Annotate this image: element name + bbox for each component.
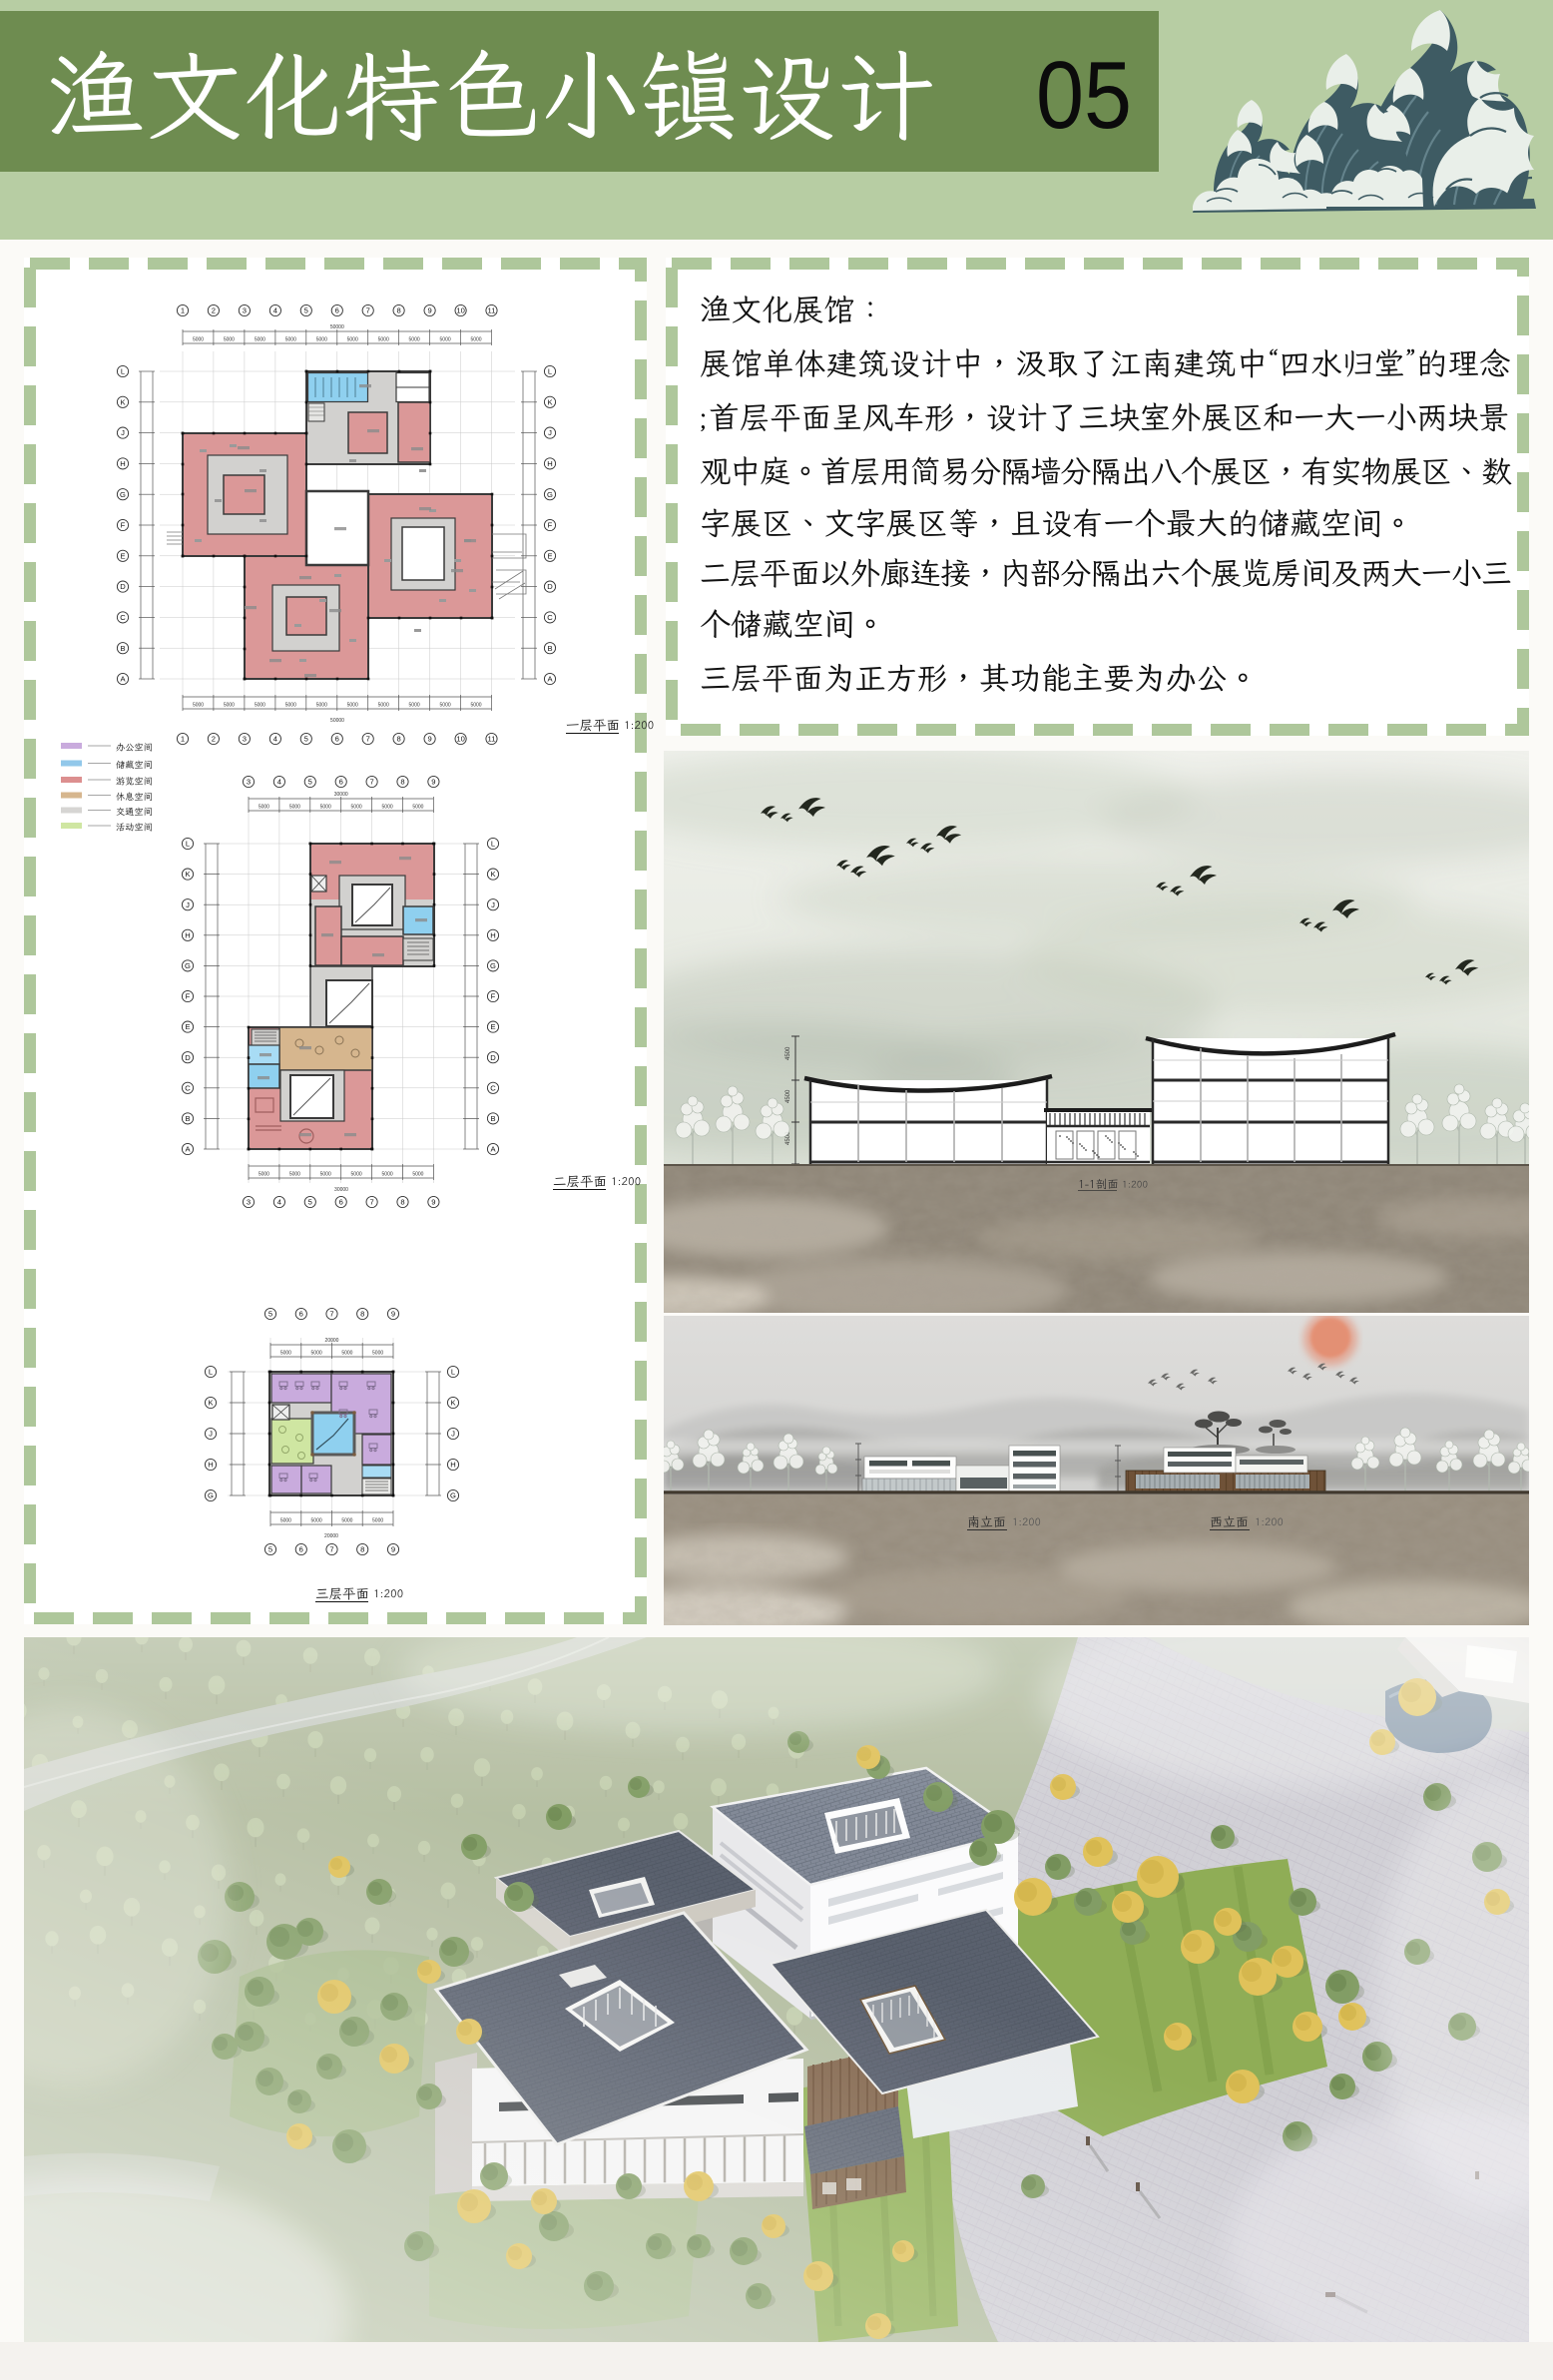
svg-text:5000: 5000 (347, 337, 358, 343)
svg-text:20000: 20000 (325, 1338, 339, 1344)
svg-text:7: 7 (369, 778, 373, 787)
svg-text:G: G (450, 1491, 456, 1500)
svg-text:4500: 4500 (785, 1089, 791, 1103)
svg-text:8: 8 (400, 778, 404, 787)
svg-text:H: H (450, 1461, 455, 1470)
svg-text:5000: 5000 (259, 805, 269, 811)
svg-text:5000: 5000 (378, 703, 389, 709)
svg-text:8: 8 (360, 1310, 364, 1319)
svg-text:D: D (185, 1053, 191, 1062)
svg-text:L: L (121, 367, 125, 376)
svg-text:8: 8 (400, 1198, 404, 1207)
svg-text:K: K (120, 397, 125, 406)
svg-text:C: C (185, 1083, 191, 1092)
svg-text:H: H (490, 930, 495, 939)
svg-text:8: 8 (396, 306, 400, 315)
svg-text:G: G (208, 1491, 214, 1500)
svg-text:6: 6 (335, 306, 339, 315)
svg-text:11: 11 (488, 735, 496, 744)
svg-text:L: L (548, 367, 552, 376)
svg-text:3: 3 (247, 1198, 251, 1207)
svg-text:5000: 5000 (440, 337, 451, 343)
svg-text:50000: 50000 (330, 718, 344, 724)
svg-text:5000: 5000 (316, 703, 327, 709)
svg-text:6: 6 (339, 1198, 343, 1207)
svg-text:5000: 5000 (259, 1172, 269, 1178)
svg-text:D: D (547, 582, 553, 591)
svg-text:K: K (208, 1399, 213, 1408)
svg-text:6: 6 (335, 735, 339, 744)
svg-text:5000: 5000 (440, 703, 451, 709)
svg-text:50000: 50000 (330, 324, 344, 330)
svg-text:H: H (120, 459, 125, 468)
svg-text:5: 5 (308, 1198, 312, 1207)
svg-text:B: B (490, 1114, 495, 1123)
svg-text:L: L (209, 1368, 213, 1377)
svg-text:5000: 5000 (372, 1518, 383, 1524)
svg-text:5000: 5000 (347, 703, 358, 709)
svg-text:L: L (491, 840, 495, 849)
svg-text:J: J (186, 900, 190, 909)
svg-text:7: 7 (366, 735, 370, 744)
svg-text:E: E (185, 1022, 190, 1031)
svg-text:5: 5 (268, 1545, 272, 1554)
svg-text:5000: 5000 (372, 1351, 383, 1357)
svg-text:5000: 5000 (470, 703, 481, 709)
svg-text:4: 4 (277, 778, 281, 787)
svg-text:5000: 5000 (311, 1351, 322, 1357)
svg-text:11: 11 (488, 306, 496, 315)
svg-text:5000: 5000 (378, 337, 389, 343)
svg-text:9: 9 (427, 735, 431, 744)
svg-text:L: L (451, 1368, 455, 1377)
svg-text:F: F (186, 992, 191, 1001)
svg-text:5000: 5000 (320, 805, 331, 811)
svg-text:7: 7 (369, 1198, 373, 1207)
svg-text:D: D (120, 582, 126, 591)
svg-text:9: 9 (391, 1310, 395, 1319)
svg-text:G: G (120, 490, 126, 499)
svg-text:5000: 5000 (351, 805, 362, 811)
svg-text:5000: 5000 (193, 703, 204, 709)
svg-text:5000: 5000 (412, 1172, 423, 1178)
svg-text:9: 9 (431, 1198, 435, 1207)
svg-text:B: B (120, 644, 125, 653)
svg-text:J: J (548, 428, 552, 437)
svg-text:1: 1 (181, 735, 185, 744)
svg-text:5000: 5000 (285, 337, 296, 343)
svg-text:5000: 5000 (382, 805, 393, 811)
svg-text:5000: 5000 (409, 703, 420, 709)
svg-text:5000: 5000 (289, 1172, 300, 1178)
svg-text:K: K (490, 870, 495, 879)
svg-text:5: 5 (304, 306, 308, 315)
svg-text:5000: 5000 (316, 337, 327, 343)
svg-text:B: B (185, 1114, 190, 1123)
svg-text:5: 5 (304, 735, 308, 744)
svg-text:C: C (120, 613, 126, 622)
svg-text:5: 5 (268, 1310, 272, 1319)
svg-text:6: 6 (339, 778, 343, 787)
svg-text:2: 2 (212, 306, 216, 315)
svg-text:K: K (450, 1399, 455, 1408)
svg-text:9: 9 (431, 778, 435, 787)
svg-text:H: H (547, 459, 552, 468)
svg-text:9: 9 (427, 306, 431, 315)
svg-text:C: C (547, 613, 553, 622)
svg-text:F: F (491, 992, 496, 1001)
svg-text:30000: 30000 (334, 1187, 348, 1193)
svg-text:5000: 5000 (224, 337, 235, 343)
svg-text:5000: 5000 (285, 703, 296, 709)
svg-text:8: 8 (360, 1545, 364, 1554)
svg-text:E: E (120, 551, 125, 560)
svg-text:B: B (547, 644, 552, 653)
svg-text:5000: 5000 (255, 703, 265, 709)
svg-text:5000: 5000 (280, 1351, 291, 1357)
svg-text:5000: 5000 (224, 703, 235, 709)
svg-text:1: 1 (181, 306, 185, 315)
svg-text:5000: 5000 (470, 337, 481, 343)
svg-text:7: 7 (329, 1545, 333, 1554)
svg-text:7: 7 (366, 306, 370, 315)
svg-text:10: 10 (456, 306, 464, 315)
svg-text:F: F (121, 521, 126, 530)
svg-text:3: 3 (243, 735, 247, 744)
svg-text:F: F (548, 521, 553, 530)
svg-text:5000: 5000 (351, 1172, 362, 1178)
svg-text:E: E (547, 551, 552, 560)
svg-text:5000: 5000 (289, 805, 300, 811)
svg-text:5000: 5000 (311, 1518, 322, 1524)
svg-text:2: 2 (212, 735, 216, 744)
svg-text:L: L (186, 840, 190, 849)
svg-text:H: H (208, 1461, 213, 1470)
svg-text:J: J (209, 1430, 213, 1439)
svg-text:H: H (185, 930, 190, 939)
svg-text:4: 4 (273, 735, 277, 744)
svg-text:K: K (185, 870, 190, 879)
svg-text:J: J (491, 900, 495, 909)
svg-text:7: 7 (329, 1310, 333, 1319)
svg-text:5: 5 (308, 778, 312, 787)
svg-text:K: K (547, 397, 552, 406)
svg-text:9: 9 (391, 1545, 395, 1554)
svg-text:5000: 5000 (280, 1518, 291, 1524)
svg-text:J: J (121, 428, 125, 437)
svg-text:6: 6 (299, 1310, 303, 1319)
svg-text:5000: 5000 (382, 1172, 393, 1178)
svg-text:05: 05 (1036, 42, 1132, 149)
svg-text:G: G (185, 961, 191, 970)
svg-text:5000: 5000 (320, 1172, 331, 1178)
svg-text:4500: 4500 (785, 1046, 791, 1060)
svg-text:5000: 5000 (409, 337, 420, 343)
svg-text:5000: 5000 (412, 805, 423, 811)
svg-text:D: D (490, 1053, 496, 1062)
svg-text:5000: 5000 (193, 337, 204, 343)
svg-text:5000: 5000 (341, 1351, 352, 1357)
svg-text:5000: 5000 (341, 1518, 352, 1524)
svg-text:4: 4 (273, 306, 277, 315)
svg-text:30000: 30000 (334, 792, 348, 798)
svg-text:4: 4 (277, 1198, 281, 1207)
svg-text:20000: 20000 (324, 1533, 338, 1539)
svg-text:E: E (490, 1022, 495, 1031)
svg-text:3: 3 (243, 306, 247, 315)
svg-text:C: C (490, 1083, 496, 1092)
svg-text:10: 10 (456, 735, 464, 744)
svg-text:G: G (490, 961, 496, 970)
svg-text:G: G (547, 490, 553, 499)
svg-text:8: 8 (396, 735, 400, 744)
svg-text:J: J (451, 1430, 455, 1439)
svg-text:6: 6 (299, 1545, 303, 1554)
svg-text:3: 3 (247, 778, 251, 787)
svg-text:5000: 5000 (255, 337, 265, 343)
